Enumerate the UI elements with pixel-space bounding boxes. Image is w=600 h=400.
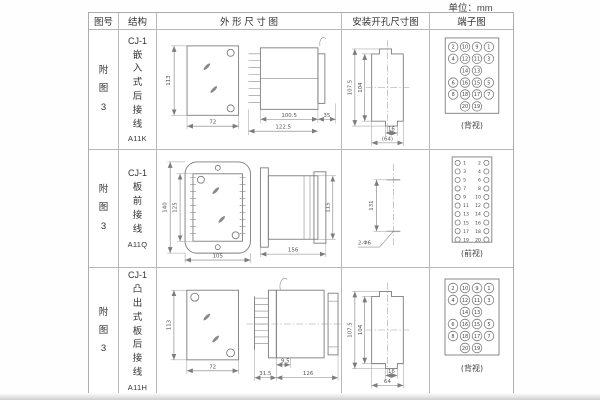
terminal-cell: (前视) 1234567891011121314151617181920 <box>430 150 513 268</box>
svg-text:10: 10 <box>462 45 468 51</box>
view-label: (背视) <box>461 120 483 130</box>
dim-outer-height: 107.5 <box>347 322 353 338</box>
svg-text:17: 17 <box>474 92 480 98</box>
fig-no-cell: 附图3 <box>89 268 119 394</box>
dim-hole-spacing: 131 <box>369 200 375 210</box>
page-edge-shadow <box>0 393 600 400</box>
header-fig-no: 图号 <box>89 13 119 30</box>
svg-text:7: 7 <box>463 186 466 192</box>
dim-height: 113 <box>166 75 172 86</box>
dim-slot-width: 16 <box>388 127 395 133</box>
svg-text:8: 8 <box>451 334 454 340</box>
svg-text:8: 8 <box>478 186 481 192</box>
svg-text:14: 14 <box>462 310 468 316</box>
hole-callout: 2-Φ6 <box>358 241 372 247</box>
svg-text:10: 10 <box>462 286 468 292</box>
structure-cell: CJ-1 嵌入式后接线 A11K <box>119 30 157 150</box>
mounting-diagram-a11q: 131 2-Φ6 <box>342 150 429 267</box>
dim-width: 72 <box>209 120 216 126</box>
svg-text:11: 11 <box>474 298 480 304</box>
dim-flange: 35 <box>323 113 330 119</box>
dim-depth: 156 <box>288 248 299 254</box>
svg-text:19: 19 <box>463 237 469 243</box>
document-page: 单位：mm 图号 结构 外 形 尺 寸 图 安装开孔尺寸图 端子图 附图3 CJ… <box>0 0 600 400</box>
svg-text:5: 5 <box>487 80 490 86</box>
dim-comb-depth: 31.5 <box>259 371 271 377</box>
svg-text:4: 4 <box>478 169 481 175</box>
structure-label: 凸出式板后接线 <box>131 283 144 379</box>
svg-text:15: 15 <box>463 220 469 226</box>
svg-text:2: 2 <box>451 286 454 292</box>
svg-text:3: 3 <box>487 298 490 304</box>
svg-text:9: 9 <box>475 286 478 292</box>
model-label: CJ-1 <box>128 168 147 178</box>
svg-text:17: 17 <box>474 334 480 340</box>
dim-height: 113 <box>166 319 172 330</box>
header-outline: 外 形 尺 寸 图 <box>157 13 342 30</box>
model-code: A11H <box>128 383 147 392</box>
mounting-cell: 107.5 104 16 (64) <box>342 30 430 150</box>
outline-diagram-a11k: 113 72 100.5 35 122.5 <box>157 30 341 149</box>
model-code: A11Q <box>128 240 148 249</box>
model-label: CJ-1 <box>128 36 147 46</box>
svg-text:2: 2 <box>452 45 455 51</box>
svg-text:11: 11 <box>474 57 480 63</box>
mounting-cell: 107.5 104 16 64 <box>342 268 430 394</box>
dim-width: 72 <box>209 364 216 370</box>
svg-text:14: 14 <box>462 68 468 74</box>
outline-cell: 113 72 9.5 31.5 126 <box>157 268 342 394</box>
svg-text:18: 18 <box>462 334 468 340</box>
terminal-diagram-a11k: (背视) 2109141211314136161558181772019 <box>430 30 513 149</box>
svg-text:12: 12 <box>462 298 468 304</box>
dim-inner-height: 125 <box>173 202 179 212</box>
dim-width: 105 <box>213 254 223 260</box>
svg-text:19: 19 <box>474 104 480 110</box>
svg-text:10: 10 <box>475 195 481 201</box>
outline-cell: 113 72 100.5 35 122.5 <box>157 30 342 150</box>
model-label: CJ-1 <box>128 270 147 280</box>
terminal-diagram-a11q: (前视) 1234567891011121314151617181920 <box>430 150 513 267</box>
header-structure: 结构 <box>119 13 157 30</box>
mounting-cell: 131 2-Φ6 <box>342 150 430 268</box>
view-label: (前视) <box>461 248 483 258</box>
model-code: A11K <box>128 134 147 143</box>
svg-text:12: 12 <box>475 203 481 209</box>
svg-text:1: 1 <box>463 161 466 167</box>
structure-cell: CJ-1 凸出式板后接线 A11H <box>119 268 157 394</box>
svg-text:15: 15 <box>474 322 480 328</box>
dim-side-height: 115 <box>325 202 331 212</box>
fig-no-label: 附图3 <box>97 304 110 358</box>
svg-text:9: 9 <box>463 195 466 201</box>
svg-text:1: 1 <box>487 286 490 292</box>
structure-label: 嵌入式后接线 <box>131 49 144 132</box>
dim-inner-height: 104 <box>358 324 364 335</box>
terminal-cell: (背视) 2109141211314136161558181772019 <box>430 30 513 150</box>
svg-text:2: 2 <box>478 161 481 167</box>
svg-text:20: 20 <box>462 346 468 352</box>
dim-depth: 126 <box>303 371 314 377</box>
svg-text:6: 6 <box>451 322 454 328</box>
terminal-diagram-a11h: (背视) 2109141211314136161558181772019 <box>430 268 513 394</box>
svg-text:15: 15 <box>474 80 480 86</box>
structure-cell: CJ-1 板前接线 A11Q <box>119 150 157 268</box>
dim-depth1: 100.5 <box>281 113 297 119</box>
header-mounting: 安装开孔尺寸图 <box>342 13 430 30</box>
svg-text:9: 9 <box>475 45 478 51</box>
svg-text:19: 19 <box>474 346 480 352</box>
view-label: (背视) <box>461 363 483 373</box>
svg-text:3: 3 <box>463 169 466 175</box>
svg-text:16: 16 <box>462 322 468 328</box>
svg-text:17: 17 <box>463 229 469 235</box>
dim-outer-width: 64 <box>384 379 391 385</box>
structure-label: 板前接线 <box>131 181 144 236</box>
dim-depth2: 122.5 <box>275 125 291 131</box>
unit-label: 单位：mm <box>429 0 512 12</box>
svg-text:7: 7 <box>487 334 490 340</box>
spec-table: 图号 结构 外 形 尺 寸 图 安装开孔尺寸图 端子图 附图3 CJ-1 嵌入式… <box>88 12 514 395</box>
dim-inner-height: 104 <box>358 82 364 93</box>
svg-text:13: 13 <box>474 68 480 74</box>
svg-text:8: 8 <box>452 92 455 98</box>
svg-text:6: 6 <box>452 80 455 86</box>
fig-no-cell: 附图3 <box>89 30 119 150</box>
svg-text:1: 1 <box>487 45 490 51</box>
fig-no-label: 附图3 <box>97 181 110 235</box>
svg-text:13: 13 <box>474 310 480 316</box>
svg-text:6: 6 <box>478 178 481 184</box>
svg-text:7: 7 <box>487 92 490 98</box>
svg-text:18: 18 <box>475 229 481 235</box>
svg-text:4: 4 <box>451 298 454 304</box>
dim-outer-width: (64) <box>382 136 393 142</box>
mounting-diagram-a11h: 107.5 104 16 64 <box>342 268 429 394</box>
terminal-cell: (背视) 2109141211314136161558181772019 <box>430 268 513 394</box>
header-terminal: 端子图 <box>430 13 513 30</box>
svg-text:3: 3 <box>487 57 490 63</box>
svg-text:12: 12 <box>462 57 468 63</box>
dim-pin-depth: 9.5 <box>281 358 290 364</box>
svg-text:11: 11 <box>463 203 469 209</box>
fig-no-cell: 附图3 <box>89 150 119 268</box>
dim-outer-height: 140 <box>163 202 169 213</box>
outline-diagram-a11h: 113 72 9.5 31.5 126 <box>157 268 341 394</box>
svg-text:14: 14 <box>475 212 481 218</box>
svg-text:18: 18 <box>462 92 468 98</box>
outline-diagram-a11q: 140 125 105 156 115 <box>157 150 341 267</box>
fig-no-label: 附图3 <box>97 62 110 116</box>
outline-cell: 140 125 105 156 115 <box>157 150 342 268</box>
svg-text:20: 20 <box>462 104 468 110</box>
svg-text:5: 5 <box>487 322 490 328</box>
mounting-diagram-a11k: 107.5 104 16 (64) <box>342 30 429 149</box>
svg-text:16: 16 <box>462 80 468 86</box>
svg-text:20: 20 <box>475 237 481 243</box>
svg-text:13: 13 <box>463 212 469 218</box>
dim-outer-height: 107.5 <box>347 80 353 96</box>
svg-text:4: 4 <box>452 57 455 63</box>
svg-text:5: 5 <box>463 178 466 184</box>
svg-text:16: 16 <box>475 220 481 226</box>
dim-slot-width: 16 <box>388 369 395 375</box>
